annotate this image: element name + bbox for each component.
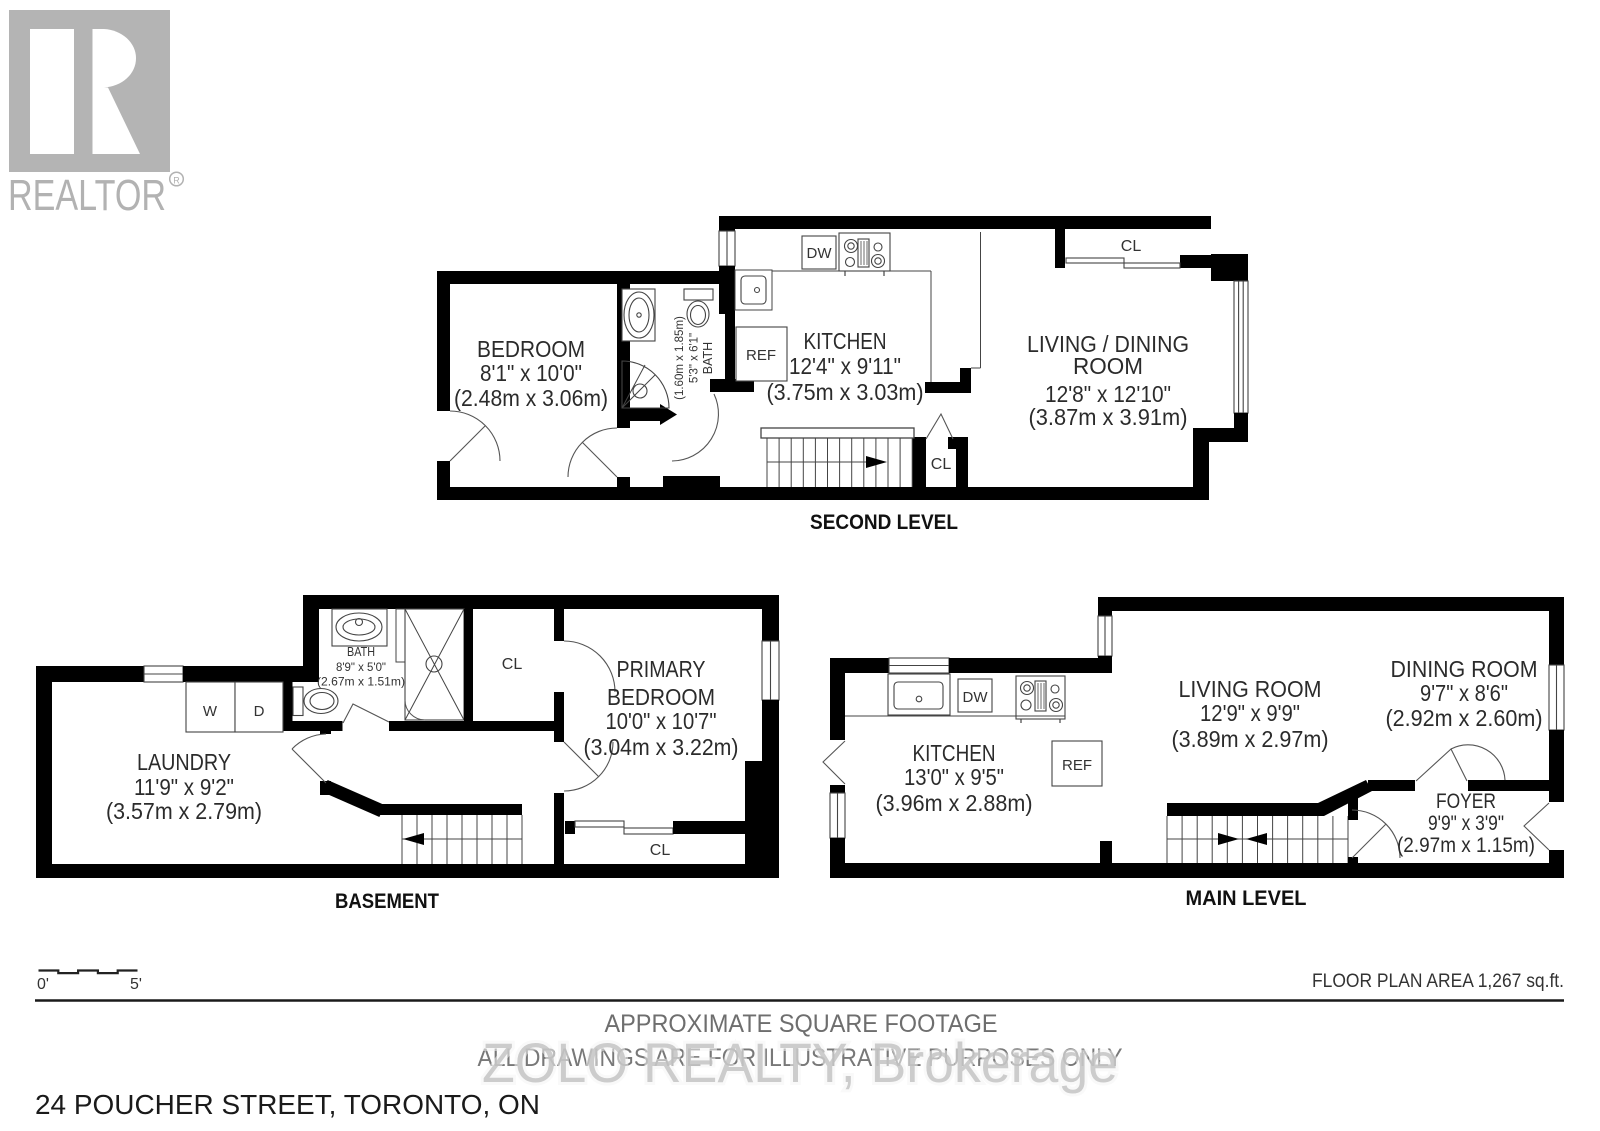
svg-text:PRIMARY: PRIMARY bbox=[617, 656, 706, 682]
svg-text:(2.48m x 3.06m): (2.48m x 3.06m) bbox=[454, 385, 608, 411]
svg-text:REF: REF bbox=[1062, 757, 1092, 774]
svg-text:(3.87m x 3.91m): (3.87m x 3.91m) bbox=[1029, 404, 1188, 430]
svg-text:LIVING ROOM: LIVING ROOM bbox=[1179, 676, 1322, 702]
svg-text:10'0" x 10'7": 10'0" x 10'7" bbox=[606, 708, 717, 734]
svg-text:BATH: BATH bbox=[347, 645, 375, 659]
svg-text:5'3" x 6'1": 5'3" x 6'1" bbox=[689, 333, 701, 383]
svg-text:(3.04m x 3.22m): (3.04m x 3.22m) bbox=[584, 734, 739, 760]
svg-text:DINING ROOM: DINING ROOM bbox=[1391, 656, 1538, 682]
svg-text:9'9" x 3'9": 9'9" x 3'9" bbox=[1428, 812, 1504, 835]
svg-text:CL: CL bbox=[931, 456, 952, 473]
svg-text:24 POUCHER STREET, TORONTO, ON: 24 POUCHER STREET, TORONTO, ON bbox=[35, 1089, 540, 1120]
svg-text:9'7" x 8'6": 9'7" x 8'6" bbox=[1420, 680, 1508, 706]
svg-text:KITCHEN: KITCHEN bbox=[804, 328, 887, 354]
svg-text:LAUNDRY: LAUNDRY bbox=[137, 749, 231, 775]
svg-text:CL: CL bbox=[650, 842, 671, 859]
svg-text:ZOLO REALTY, Brokerage: ZOLO REALTY, Brokerage bbox=[482, 1031, 1118, 1094]
svg-text:12'4" x 9'11": 12'4" x 9'11" bbox=[789, 353, 901, 379]
svg-text:SECOND LEVEL: SECOND LEVEL bbox=[810, 511, 958, 534]
svg-text:(2.67m x 1.51m): (2.67m x 1.51m) bbox=[317, 675, 405, 689]
svg-text:REF: REF bbox=[746, 347, 776, 364]
svg-text:BATH: BATH bbox=[701, 342, 715, 374]
svg-text:(3.57m x 2.79m): (3.57m x 2.79m) bbox=[106, 798, 262, 824]
svg-text:(2.97m x 1.15m): (2.97m x 1.15m) bbox=[1397, 834, 1535, 857]
svg-text:(3.89m x 2.97m): (3.89m x 2.97m) bbox=[1172, 726, 1329, 752]
svg-text:DW: DW bbox=[963, 689, 989, 706]
svg-text:CL: CL bbox=[502, 656, 523, 673]
svg-text:(2.92m x 2.60m): (2.92m x 2.60m) bbox=[1386, 705, 1543, 731]
svg-text:FOYER: FOYER bbox=[1436, 790, 1496, 813]
svg-text:CL: CL bbox=[1121, 238, 1142, 255]
svg-text:BEDROOM: BEDROOM bbox=[477, 336, 585, 362]
svg-text:R: R bbox=[173, 176, 180, 186]
svg-text:KITCHEN: KITCHEN bbox=[913, 740, 996, 766]
svg-text:8'9" x 5'0": 8'9" x 5'0" bbox=[336, 660, 386, 674]
svg-text:DW: DW bbox=[807, 245, 833, 262]
svg-text:13'0" x 9'5": 13'0" x 9'5" bbox=[904, 764, 1004, 790]
svg-text:MAIN LEVEL: MAIN LEVEL bbox=[1186, 887, 1307, 910]
svg-text:(3.96m x 2.88m): (3.96m x 2.88m) bbox=[876, 790, 1033, 816]
svg-text:REALTOR: REALTOR bbox=[8, 171, 166, 220]
svg-text:W: W bbox=[203, 703, 218, 720]
svg-text:11'9" x 9'2": 11'9" x 9'2" bbox=[134, 774, 234, 800]
svg-text:(3.75m x 3.03m): (3.75m x 3.03m) bbox=[767, 379, 924, 405]
svg-text:BASEMENT: BASEMENT bbox=[335, 890, 439, 913]
svg-text:0': 0' bbox=[37, 976, 49, 993]
svg-text:BEDROOM: BEDROOM bbox=[607, 684, 715, 710]
svg-text:ROOM: ROOM bbox=[1073, 353, 1143, 379]
svg-text:FLOOR PLAN AREA 1,267 sq.ft.: FLOOR PLAN AREA 1,267 sq.ft. bbox=[1312, 971, 1564, 992]
svg-text:D: D bbox=[254, 703, 265, 720]
svg-text:5': 5' bbox=[130, 976, 142, 993]
svg-text:(1.60m x 1.85m): (1.60m x 1.85m) bbox=[674, 316, 686, 400]
svg-text:12'9" x 9'9": 12'9" x 9'9" bbox=[1200, 700, 1300, 726]
svg-text:8'1" x 10'0": 8'1" x 10'0" bbox=[480, 360, 582, 386]
